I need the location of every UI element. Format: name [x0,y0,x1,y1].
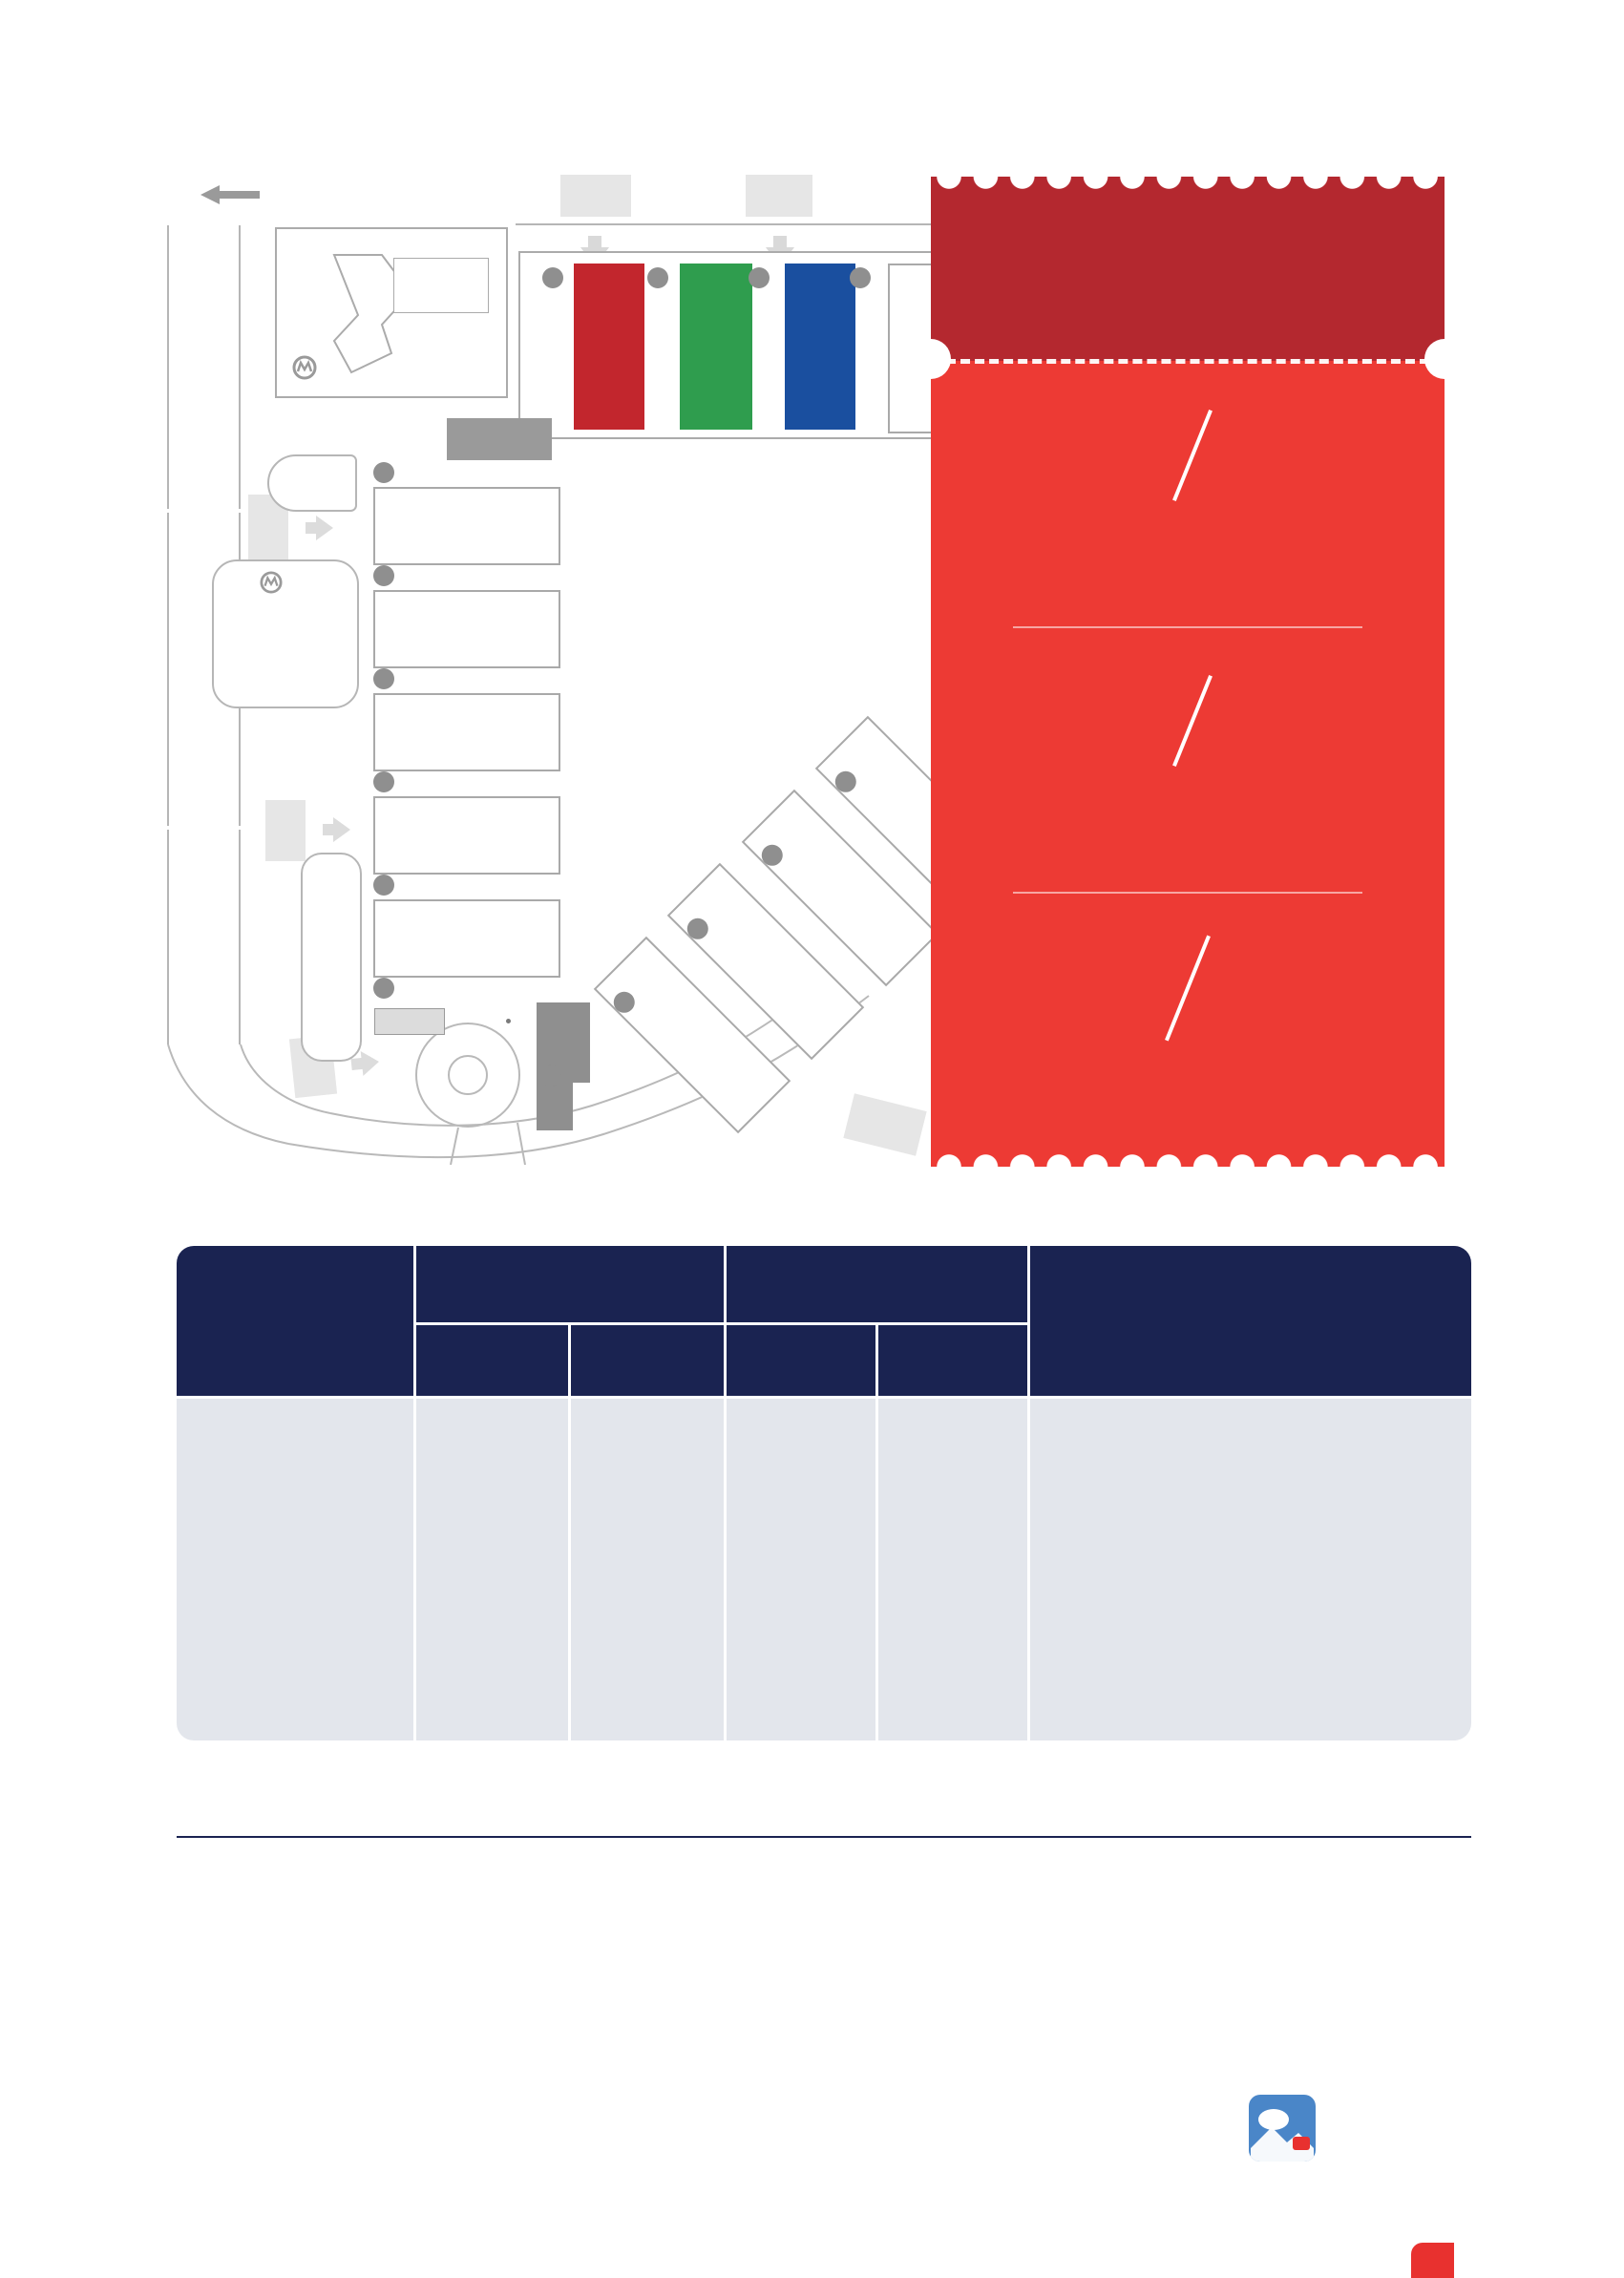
subcol-intl-std [878,1325,1027,1396]
group-domestic [416,1246,724,1322]
ticket-body [931,361,1445,1167]
row-price-label [177,1399,413,1740]
price-intl-bare [727,1399,875,1740]
hotel-block [275,227,508,398]
loading-bay-7 [540,267,565,296]
price-tier-2 [931,672,1445,787]
loading-bay-5 [373,565,406,586]
flyer-page [0,0,1624,2278]
hall-w5 [373,487,560,565]
slash-icon [1165,936,1211,1042]
footer-divider [177,1836,1471,1838]
loading-bay-9 [747,267,771,296]
parking-p6 [267,454,357,512]
gate-1-arrow-icon [361,1049,381,1076]
col-remarks [1030,1246,1471,1396]
price-domestic-std [571,1399,724,1740]
price-intl-std [878,1399,1027,1740]
price-table [177,1246,1471,1740]
gate-2-arrow-icon [333,817,350,842]
gate-2 [265,800,306,861]
wechat-qr-code [1110,1956,1454,2278]
loading-bay-4 [373,668,406,689]
gate-4 [560,175,631,217]
tier-divider-1 [1013,626,1362,628]
group-international [727,1246,1027,1322]
loading-bay-6 [373,462,406,483]
gate-3-arrow-icon [316,516,333,540]
ticket-notch-left [911,339,951,379]
price-tier-1 [931,407,1445,521]
hall-n2 [680,264,752,430]
ticket-scallop-bottom [931,1152,1445,1167]
taxi-dot [506,1019,511,1023]
ticket-header [931,177,1445,361]
hall-w4 [373,590,560,668]
hall-w2 [373,796,560,875]
entrance-hall-2 [447,418,552,460]
tier-divider-2 [1013,892,1362,894]
photo-icon [1249,2095,1316,2162]
slash-icon [1172,410,1213,501]
gate-5 [746,175,812,217]
hall-n1 [574,264,644,430]
parking-p5 [212,559,359,708]
ticket-scallop-top [931,177,1445,191]
slash-icon [1172,675,1213,767]
col-booth-spec [177,1246,413,1396]
metro-logo-icon [292,355,317,380]
loading-bay-1 [373,978,406,999]
venue-map [105,103,976,1165]
price-domestic-bare [416,1399,568,1740]
road-yinghua-label [160,826,271,830]
dongfang-arrow-icon [200,185,260,204]
subcol-domestic-std [571,1325,724,1396]
parking-p4 [301,853,362,1062]
badge-center [374,1008,445,1035]
ticket-notch-right [1424,339,1465,379]
ticket-dashed-separator [946,359,1429,364]
remarks-content [1030,1399,1471,1740]
loading-bay-3 [373,771,406,792]
loading-bay-10 [848,267,873,296]
qr-center-logo [1242,2088,1322,2168]
loading-bay-8 [645,267,670,296]
subcol-intl-bare [727,1325,875,1396]
hall-w3 [373,693,560,771]
hotel-label-box [393,258,489,313]
metro-logo-icon [260,571,283,594]
north-road-line [516,223,964,225]
loading-bay-2 [373,875,406,896]
price-tier-3 [931,932,1445,1073]
subcol-domestic-bare [416,1325,568,1396]
qr-red-corner [1411,2243,1454,2278]
hall-n3 [785,264,855,430]
road-huamu-label [831,181,936,185]
early-bird-ticket [931,177,1445,1167]
hall-w1 [373,899,560,978]
